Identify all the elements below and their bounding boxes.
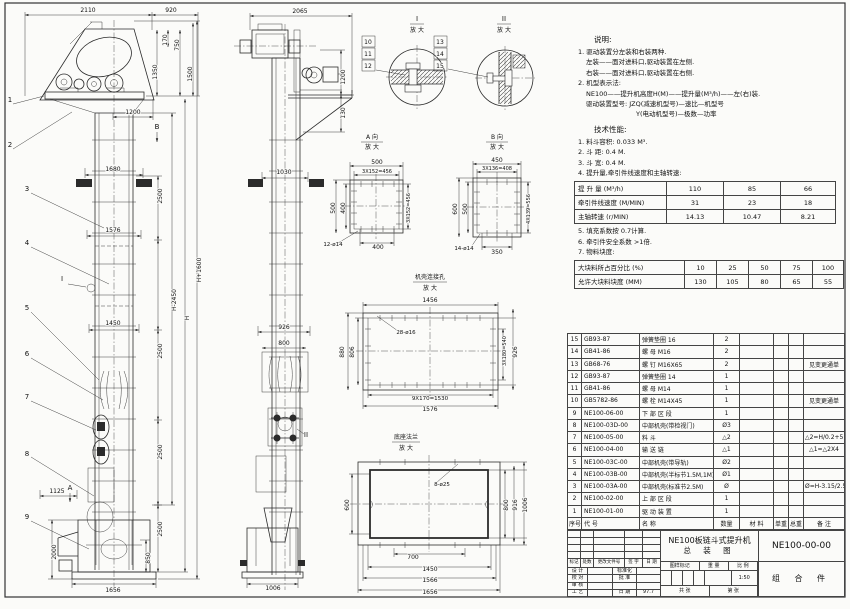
dim-label: A <box>68 484 73 492</box>
table-cell: △2 <box>714 432 740 444</box>
notes-title: 说明: <box>594 34 848 46</box>
dim-label: 2065 <box>292 8 307 15</box>
inspection-door <box>88 468 114 502</box>
dim-label: 806 <box>349 346 356 358</box>
table-cell <box>804 346 845 358</box>
revision-signature-block: 标记 处数 更改文件号 签 字 日 期 设 计标准化 校 对批 准 审 核 工 … <box>568 531 661 596</box>
table-cell: 15 <box>568 334 582 346</box>
table-cell: 1 <box>568 505 582 517</box>
dim-label: 放 大 <box>423 284 437 292</box>
table-cell: 1 <box>714 505 740 517</box>
dim-label: 12-ø14 <box>323 242 343 248</box>
dim-label: 28-ø16 <box>396 330 416 336</box>
table-cell: NE100-03C-00 <box>582 456 640 468</box>
table-cell <box>804 505 845 517</box>
table-cell <box>740 383 774 395</box>
table-cell: NE100-06-00 <box>582 407 640 419</box>
table-cell: 110 <box>667 182 724 196</box>
view-a-detail <box>333 142 411 246</box>
table-cell <box>804 493 845 505</box>
table-cell: NE100-03B-00 <box>582 468 640 480</box>
table-cell: 弹簧垫圈 14 <box>640 370 714 382</box>
table-cell: GB41-86 <box>582 346 640 358</box>
table-cell <box>740 505 774 517</box>
note-line: 1. 料斗容积: 0.033 M³. <box>578 137 848 147</box>
table-cell: 见变更通单 <box>804 358 845 370</box>
dim-label: 916 <box>512 499 519 511</box>
dim-label: 6 <box>25 350 30 358</box>
title-block: 标记 处数 更改文件号 签 字 日 期 设 计标准化 校 对批 准 审 核 工 … <box>567 530 845 597</box>
table-cell: 3 <box>568 481 582 493</box>
table-cell: 8 <box>568 419 582 431</box>
dim-label: 500 <box>371 159 383 166</box>
dim-label: 2500 <box>157 521 164 536</box>
dim-label: 400 <box>340 202 347 214</box>
table-cell: 中部机壳(带导轨) <box>640 456 714 468</box>
table-cell: △2=H/0.2+5.75 <box>804 432 845 444</box>
dim-label: II <box>502 15 506 23</box>
table-cell: 75 <box>781 261 813 275</box>
table-cell: 4 <box>568 468 582 480</box>
table-cell <box>789 493 804 505</box>
table-cell: NE100-05-00 <box>582 432 640 444</box>
dim-label: 2500 <box>157 188 164 203</box>
table-cell <box>740 358 774 370</box>
detail-ii-view <box>434 24 535 110</box>
drawing-number-block: NE100-00-00 组 合 件 <box>759 531 844 596</box>
note-line: 1. 驱动装置分左装和右装两种. <box>578 47 848 57</box>
dim-label: 1 <box>8 96 12 104</box>
table-cell: 23 <box>724 196 781 210</box>
table-cell: 主轴转速 (r/MIN) <box>575 210 667 224</box>
table-cell: △1 <box>714 444 740 456</box>
dim-label: I <box>61 275 63 283</box>
dim-label: 700 <box>407 554 419 561</box>
table-cell <box>804 407 845 419</box>
dim-label: 底座法兰 <box>394 433 418 441</box>
table-cell: 螺 母 M14 <box>640 383 714 395</box>
note-line: 3. 斗 宽: 0.4 M. <box>578 158 848 168</box>
table-cell <box>740 419 774 431</box>
parts-list: 15GB93-87弹簧垫圈 16214GB41-86螺 母 M16213GB68… <box>567 333 845 530</box>
table-cell: 55 <box>813 275 844 289</box>
dim-label: 9 <box>25 513 29 521</box>
table-cell <box>774 419 789 431</box>
note-line: 驱动装置型号: JZQ(减速机型号)—速比—机型号 <box>586 99 848 109</box>
table-cell: 数量 <box>714 517 740 529</box>
table-cell: 中部机壳(带检视门) <box>640 419 714 431</box>
note-line: Y(电动机型号)—极数—功率 <box>636 109 848 119</box>
table-cell: NE100-01-00 <box>582 505 640 517</box>
dim-label: 500 <box>330 202 337 214</box>
dim-label: 2000 <box>51 544 58 559</box>
table-cell <box>804 383 845 395</box>
table-cell: 2 <box>714 334 740 346</box>
table-cell <box>789 505 804 517</box>
performance-table: 提 升 量 (M³/h)1108566牵引件线速度 (M/MIN)312318主… <box>574 181 836 224</box>
table-cell: 11 <box>568 383 582 395</box>
dim-label: 1500 <box>187 66 194 81</box>
dim-label: 1576 <box>422 406 437 413</box>
dim-label: 500 <box>462 203 469 215</box>
table-cell <box>789 370 804 382</box>
note-line: 4. 提升量,牵引件线速度和主轴转速: <box>578 168 848 178</box>
table-cell: 66 <box>781 182 836 196</box>
dim-label: 8 <box>25 450 29 458</box>
table-cell: 代 号 <box>582 517 640 529</box>
note-line: 2. 机型表示法: <box>578 78 848 88</box>
dim-label: I <box>416 15 418 23</box>
scale-value: 1:50 <box>732 571 759 585</box>
table-cell: 备 注 <box>804 517 845 529</box>
dim-label: 3X180=540 <box>502 336 508 366</box>
table-cell <box>740 468 774 480</box>
dim-label: 11 <box>364 51 372 58</box>
table-cell: 10.47 <box>724 210 781 224</box>
table-cell: Ø <box>714 481 740 493</box>
dim-label: 5 <box>25 304 29 312</box>
table-cell: Ø=H-3.15/2.5 <box>804 481 845 493</box>
table-cell: 100 <box>813 261 844 275</box>
dim-label: 机壳连接孔 <box>415 273 445 281</box>
tech-title: 技术性能: <box>594 124 848 136</box>
table-cell: 中部机壳(标准节2.5M) <box>640 481 714 493</box>
table-cell <box>774 334 789 346</box>
dim-label: B <box>155 123 160 131</box>
table-cell: NE100-02-00 <box>582 493 640 505</box>
dim-label: 4 <box>25 239 30 247</box>
dim-label: 750 <box>174 39 181 51</box>
table-cell <box>774 493 789 505</box>
dim-label: 1566 <box>422 577 437 584</box>
table-cell <box>774 358 789 370</box>
dim-label: 450 <box>491 157 503 164</box>
detail-i-view <box>362 24 448 109</box>
table-cell <box>804 334 845 346</box>
table-cell: 料 斗 <box>640 432 714 444</box>
table-cell: 中部机壳(半标节1.5M,1M) <box>640 468 714 480</box>
dim-label: 1450 <box>422 566 437 573</box>
dim-label: 1656 <box>105 587 120 594</box>
table-cell <box>774 481 789 493</box>
dim-label: 600 <box>452 203 459 215</box>
dim-label: 放 大 <box>410 26 424 34</box>
dim-label: B 向 <box>491 133 503 141</box>
table-cell <box>774 432 789 444</box>
table-cell: NE100-04-00 <box>582 444 640 456</box>
table-cell <box>789 432 804 444</box>
table-cell: GB93-87 <box>582 334 640 346</box>
dim-label: 850 <box>145 552 152 564</box>
table-cell: 螺 母 M16 <box>640 346 714 358</box>
dim-label: 2500 <box>157 343 164 358</box>
table-cell: 下 部 区 段 <box>640 407 714 419</box>
table-cell <box>804 370 845 382</box>
dim-label: 130 <box>340 107 347 119</box>
dim-label: 14 <box>436 51 444 58</box>
table-cell: 单重 <box>774 517 789 529</box>
table-cell <box>774 395 789 407</box>
side-elevation-view <box>234 13 354 590</box>
table-cell: Ø2 <box>714 456 740 468</box>
table-cell: 螺 栓 M14X45 <box>640 395 714 407</box>
dim-label: 1006 <box>522 497 529 512</box>
table-cell: 6 <box>568 444 582 456</box>
part-type: 组 合 件 <box>759 562 844 596</box>
table-cell: 见变更通单 <box>804 395 845 407</box>
dim-label: 3X152=456 <box>406 193 412 223</box>
revision-header-row: 标记 处数 更改文件号 签 字 日 期 <box>568 559 660 568</box>
table-cell: 2 <box>714 346 740 358</box>
dim-label: 880 <box>339 346 346 358</box>
table-cell: 1 <box>714 383 740 395</box>
table-cell <box>740 407 774 419</box>
detail-i-marker <box>87 284 95 292</box>
table-cell <box>774 456 789 468</box>
drawing-title: NE100板链斗式提升机 <box>668 537 750 545</box>
bom-table: 15GB93-87弹簧垫圈 16214GB41-86螺 母 M16213GB68… <box>567 333 845 530</box>
dim-label: 1350 <box>152 64 159 79</box>
table-cell <box>774 407 789 419</box>
dim-label: 13 <box>436 39 444 46</box>
table-cell <box>740 334 774 346</box>
table-cell: Ø3 <box>714 419 740 431</box>
note-line: 7. 物料块度: <box>578 247 848 257</box>
table-cell <box>740 444 774 456</box>
table-cell: 牵引件线速度 (M/MIN) <box>575 196 667 210</box>
table-cell <box>740 395 774 407</box>
dim-label: 3X152=456 <box>362 169 392 175</box>
dim-label: 926 <box>512 346 519 358</box>
table-cell: GB41-86 <box>582 383 640 395</box>
table-cell <box>789 444 804 456</box>
table-cell <box>774 346 789 358</box>
note-line: 左装——面对进料口,驱动装置在左侧. <box>586 57 848 67</box>
note-line: NE100——提升机高度H(M)——提升量(M³/h)——左(右)装. <box>586 89 848 99</box>
table-cell <box>789 346 804 358</box>
table-cell: Ø1 <box>714 468 740 480</box>
dim-label: 600 <box>344 499 351 511</box>
table-cell: NE100-03A-00 <box>582 481 640 493</box>
table-cell: 18 <box>781 196 836 210</box>
table-cell <box>774 370 789 382</box>
note-line: 5. 填充系数按 0.7计算. <box>578 226 848 236</box>
dim-label: 926 <box>278 324 290 331</box>
table-cell: 1 <box>714 370 740 382</box>
table-cell: 2 <box>568 493 582 505</box>
dim-label: 2110 <box>80 7 95 14</box>
table-cell <box>789 456 804 468</box>
base-flange-detail <box>349 442 527 593</box>
table-cell: 材 料 <box>740 517 774 529</box>
dim-label: 1030 <box>276 169 291 176</box>
dim-label: 12 <box>364 63 372 70</box>
dim-label: 放 大 <box>490 143 504 151</box>
dim-label: 2 <box>8 141 12 149</box>
dim-label: 1576 <box>105 227 120 234</box>
dim-label: 1456 <box>422 297 437 304</box>
table-cell <box>804 456 845 468</box>
table-cell <box>789 468 804 480</box>
dim-label: 920 <box>165 7 177 14</box>
dim-label: 1125 <box>49 488 64 495</box>
dim-label: A 向 <box>366 133 378 141</box>
wall-bracket <box>76 179 92 187</box>
dim-label: 3X136=408 <box>482 166 512 172</box>
notes-panel: 说明: 1. 驱动装置分左装和右装两种. 左装——面对进料口,驱动装置在左侧. … <box>572 30 848 291</box>
dim-label: 7 <box>25 393 29 401</box>
table-cell: 14.13 <box>667 210 724 224</box>
table-cell: NE100-03D-00 <box>582 419 640 431</box>
dim-label: 1006 <box>265 585 280 592</box>
table-cell: 14 <box>568 346 582 358</box>
drawing-title-block: NE100板链斗式提升机 总 装 图 图样标记 重 量 比 例 1:50 共 张… <box>661 531 759 596</box>
table-cell: 65 <box>781 275 813 289</box>
table-cell: 7 <box>568 432 582 444</box>
dim-label: 1450 <box>105 320 120 327</box>
table-cell: 总重 <box>789 517 804 529</box>
table-cell <box>789 395 804 407</box>
dim-label: 放 大 <box>497 26 511 34</box>
table-cell: 13 <box>568 358 582 370</box>
dim-label: 350 <box>491 249 503 256</box>
dim-label: 15 <box>436 63 444 70</box>
lump-size-table: 大块料所占百分比 (%)10255075100允许大块料块度 (MM)13010… <box>574 260 844 289</box>
note-line: 右装——面对进料口,驱动装置在右侧. <box>586 68 848 78</box>
dim-label: 1680 <box>105 166 120 173</box>
table-cell: 12 <box>568 370 582 382</box>
table-cell <box>774 444 789 456</box>
table-cell <box>740 346 774 358</box>
table-cell: 名 称 <box>640 517 714 529</box>
dim-label: H <box>184 316 191 321</box>
table-cell: 提 升 量 (M³/h) <box>575 182 667 196</box>
table-cell: 10 <box>568 395 582 407</box>
dim-label: 14-ø14 <box>454 246 474 252</box>
table-cell: 105 <box>717 275 749 289</box>
table-cell <box>789 383 804 395</box>
motor <box>323 67 338 82</box>
table-cell: 驱 动 装 置 <box>640 505 714 517</box>
drawing-sheet: 2110920170750135015001200168025001576H+1… <box>0 0 850 609</box>
dim-label: 1200 <box>340 69 347 84</box>
table-cell: 弹簧垫圈 16 <box>640 334 714 346</box>
table-cell <box>804 419 845 431</box>
table-cell: GB68-76 <box>582 358 640 370</box>
table-cell: 130 <box>685 275 717 289</box>
table-cell <box>804 468 845 480</box>
table-cell: 2 <box>714 358 740 370</box>
table-cell: 允许大块料块度 (MM) <box>575 275 685 289</box>
table-cell: 31 <box>667 196 724 210</box>
dim-label: 3 <box>25 185 29 193</box>
dim-label: 800 <box>503 499 510 511</box>
dimension-lines <box>25 15 528 590</box>
table-cell: 5 <box>568 456 582 468</box>
table-cell: 10 <box>685 261 717 275</box>
table-cell <box>774 383 789 395</box>
table-cell <box>789 407 804 419</box>
table-cell: 50 <box>749 261 781 275</box>
dim-label: H-2450 <box>171 289 178 311</box>
dim-label: 放 大 <box>365 143 379 151</box>
note-line: 6. 牵引件安全系数 >1倍. <box>578 237 848 247</box>
table-cell: 螺 钉 M16X65 <box>640 358 714 370</box>
table-cell <box>789 481 804 493</box>
dim-label: H+1600 <box>196 257 203 282</box>
dim-label: 800 <box>278 340 290 347</box>
note-line: 2. 斗 距: 0.4 M. <box>578 147 848 157</box>
table-cell: 85 <box>724 182 781 196</box>
table-cell: GB5782-86 <box>582 395 640 407</box>
dim-label: 放 大 <box>399 444 413 452</box>
dim-label: 2500 <box>157 444 164 459</box>
table-cell: 1 <box>714 493 740 505</box>
table-cell: 序号 <box>568 517 582 529</box>
dim-label: 1200 <box>125 109 140 116</box>
table-cell: △1=△2X4 <box>804 444 845 456</box>
table-cell: 上 部 区 段 <box>640 493 714 505</box>
table-cell <box>740 456 774 468</box>
table-cell <box>774 505 789 517</box>
table-cell: 80 <box>749 275 781 289</box>
table-cell <box>740 432 774 444</box>
table-cell <box>789 419 804 431</box>
table-cell <box>740 493 774 505</box>
dim-label: 400 <box>372 244 384 251</box>
dim-label: II <box>304 431 308 439</box>
table-cell <box>774 468 789 480</box>
drawing-number: NE100-00-00 <box>759 531 844 562</box>
table-cell <box>740 370 774 382</box>
table-cell: 1 <box>714 407 740 419</box>
dim-label: 10 <box>364 39 372 46</box>
dim-label: 9X170=1530 <box>412 396 449 402</box>
table-cell: GB93-87 <box>582 370 640 382</box>
table-cell: 8.21 <box>781 210 836 224</box>
wall-bracket <box>136 179 152 187</box>
dim-label: 1656 <box>422 589 437 596</box>
dim-label: 4X139=556 <box>526 194 532 224</box>
dim-label: 170 <box>162 34 169 46</box>
table-cell: 9 <box>568 407 582 419</box>
table-cell <box>789 358 804 370</box>
table-cell: 25 <box>717 261 749 275</box>
table-cell <box>740 481 774 493</box>
table-cell: 大块料所占百分比 (%) <box>575 261 685 275</box>
table-cell: 1 <box>714 395 740 407</box>
table-cell <box>789 334 804 346</box>
dim-label: 8-ø25 <box>434 482 450 488</box>
table-cell: 输 送 链 <box>640 444 714 456</box>
drawing-subtitle: 总 装 图 <box>683 547 735 555</box>
